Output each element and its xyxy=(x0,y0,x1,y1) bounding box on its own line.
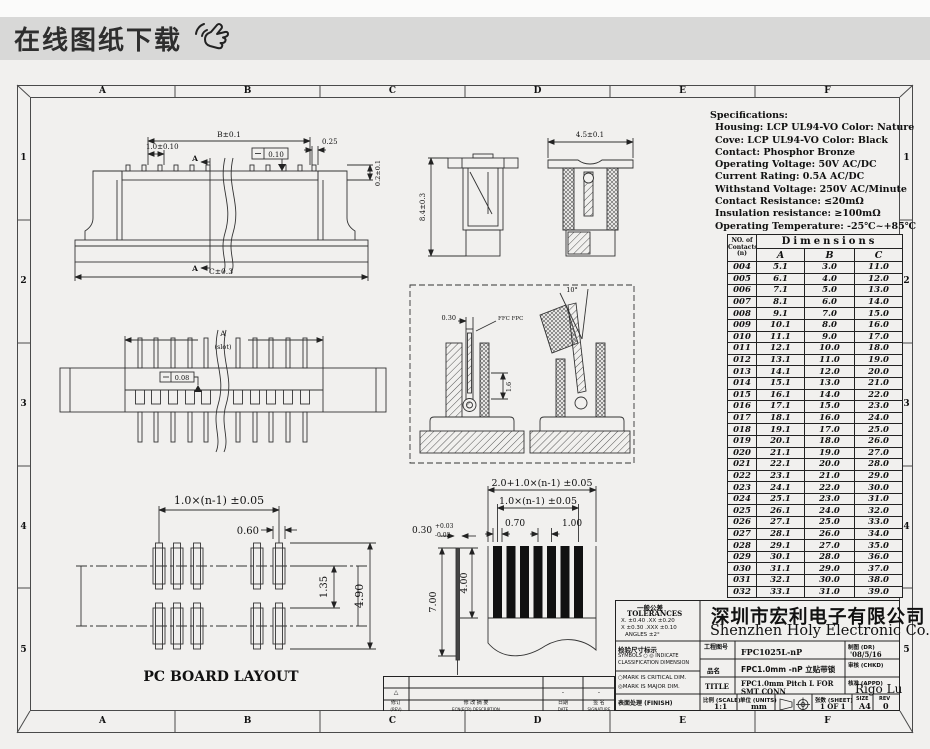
click-hand-icon xyxy=(192,21,234,57)
spec-line: Housing: LCP UL94-VO Color: Nature xyxy=(710,122,910,134)
table-cell: 28.0 xyxy=(805,551,855,563)
table-row: 01516.114.022.0 xyxy=(728,389,903,401)
pcb-layout-drawing: 1.0×(n-1) ±0.05 0.60 1.35 4.90 PC BOARD … xyxy=(58,484,393,689)
table-cell: 20.0 xyxy=(805,459,855,471)
frame-column-label: A xyxy=(30,85,175,97)
spec-line: Contact Resistance: ≤20mΩ xyxy=(710,196,910,208)
table-cell: 23.1 xyxy=(757,470,805,482)
table-cell: 13.0 xyxy=(805,377,855,389)
dim-tip-label: 0.30 xyxy=(442,314,456,322)
table-cell: 19.1 xyxy=(757,424,805,436)
table-cell: 27.1 xyxy=(757,517,805,529)
table-cell: 20.1 xyxy=(757,435,805,447)
table-row: 02829.127.035.0 xyxy=(728,540,903,552)
table-cell: 7.0 xyxy=(805,308,855,320)
table-cell: 10.0 xyxy=(805,343,855,355)
pcb-layout-title: PC BOARD LAYOUT xyxy=(143,669,299,685)
table-row: 02728.126.034.0 xyxy=(728,528,903,540)
dim-thickness-tol-dn: -0.02 xyxy=(435,532,451,539)
dim-angle-label: 10° xyxy=(566,286,578,294)
table-cell: 6.0 xyxy=(805,296,855,308)
table-cell: 14.1 xyxy=(757,366,805,378)
table-cell: 10.1 xyxy=(757,319,805,331)
dim-thickness-label: 0.30 xyxy=(412,526,432,536)
table-row: 02021.119.027.0 xyxy=(728,447,903,459)
table-cell: 004 xyxy=(728,262,757,274)
table-cell: 25.0 xyxy=(855,424,903,436)
table-row: 01314.112.020.0 xyxy=(728,366,903,378)
tolerance-line-3: ANGLES ±2° xyxy=(625,632,660,638)
spec-line: Contact: Phosphor Bronze xyxy=(710,147,910,159)
specs-lines: Housing: LCP UL94-VO Color: NatureCove: … xyxy=(710,122,910,233)
table-cell: 32.0 xyxy=(855,505,903,517)
tolerance-line-2: X ±0.30 .XXX ±0.10 xyxy=(621,625,677,631)
table-cell: 20.0 xyxy=(855,366,903,378)
table-cell: 013 xyxy=(728,366,757,378)
table-cell: 22.0 xyxy=(855,389,903,401)
table-cell: 26.1 xyxy=(757,505,805,517)
table-cell: 014 xyxy=(728,377,757,389)
table-row: 03132.130.038.0 xyxy=(728,575,903,587)
dim-end-label: 0.25 xyxy=(322,138,338,146)
table-cell: 3.0 xyxy=(805,262,855,274)
frame-column-label: E xyxy=(610,85,755,97)
table-row: 02122.120.028.0 xyxy=(728,459,903,471)
table-cell: 006 xyxy=(728,285,757,297)
dim-span-label: 1.0×(n-1) ±0.05 xyxy=(499,496,577,507)
page-top-strip xyxy=(0,0,930,17)
table-cell: 16.0 xyxy=(855,319,903,331)
table-row: 01011.19.017.0 xyxy=(728,331,903,343)
table-cell: 15.1 xyxy=(757,377,805,389)
table-cell: 19.0 xyxy=(855,354,903,366)
dim-pad-label: 0.70 xyxy=(505,519,525,529)
table-cell: 14.0 xyxy=(805,389,855,401)
table-cell: 26.0 xyxy=(855,435,903,447)
frame-column-label: D xyxy=(465,85,610,97)
dim-inner-label: 1.35 xyxy=(319,576,330,598)
frame-column-label: D xyxy=(465,711,610,733)
section-label-top: A xyxy=(191,154,198,163)
table-cell: 18.1 xyxy=(757,412,805,424)
table-cell: 007 xyxy=(728,296,757,308)
table-cell: 18.0 xyxy=(855,343,903,355)
col-label-en: ECN(ECR) DESCRIPTION xyxy=(409,707,543,713)
revision-row-date: - xyxy=(543,690,583,696)
table-cell: 17.0 xyxy=(855,331,903,343)
table-corner-header: NO. of Contacts (n) xyxy=(728,235,757,262)
inspection-line-1: SYMBOLS ○ ◎ INDICATE xyxy=(618,653,679,659)
table-col-header-c: C xyxy=(855,249,903,262)
table-cell: 17.1 xyxy=(757,401,805,413)
revision-col-rev: 修订 (REV) xyxy=(383,701,409,712)
table-cell: 12.1 xyxy=(757,343,805,355)
table-col-header-a: A xyxy=(757,249,805,262)
dim-b-label: B±0.1 xyxy=(217,130,241,139)
table-cell: 37.0 xyxy=(855,563,903,575)
table-cell: 25.0 xyxy=(805,517,855,529)
table-cell: 31.0 xyxy=(855,493,903,505)
table-cell: 32.1 xyxy=(757,575,805,587)
table-cell: 22.0 xyxy=(805,482,855,494)
table-cell: 25.1 xyxy=(757,493,805,505)
sheet-value: 1 OF 1 xyxy=(820,702,846,711)
table-cell: 11.1 xyxy=(757,331,805,343)
table-cell: 017 xyxy=(728,412,757,424)
title-block: 一般公差 TOLERANCES X. ±0.40 .XX ±0.20 X ±0.… xyxy=(615,600,900,711)
revision-row-sign: - xyxy=(583,690,615,696)
tolerance-title-en: TOLERANCES xyxy=(627,609,682,618)
table-cell: 6.1 xyxy=(757,273,805,285)
table-row: 02627.125.033.0 xyxy=(728,517,903,529)
table-cell: 12.0 xyxy=(805,366,855,378)
table-cell: 027 xyxy=(728,528,757,540)
table-cell: 31.0 xyxy=(805,586,855,598)
table-row: 0067.15.013.0 xyxy=(728,285,903,297)
side-section-views: 8.4±0.3 4.5±0.1 xyxy=(418,112,643,262)
table-row: 01920.118.026.0 xyxy=(728,435,903,447)
table-row: 03031.129.037.0 xyxy=(728,563,903,575)
dim-thickness-tol-up: +0.03 xyxy=(435,523,454,530)
table-cell: 015 xyxy=(728,389,757,401)
mark-major-note: ◎MARK IS MAJOR DIM. xyxy=(618,684,680,690)
frame-row-label: 5 xyxy=(17,588,30,711)
table-cell: 23.0 xyxy=(855,401,903,413)
revision-table: △ - - 修订 (REV) 修 改 摘 要 ECN(ECR) DESCRIPT… xyxy=(383,676,615,711)
table-cell: 008 xyxy=(728,308,757,320)
table-cell: 24.0 xyxy=(855,412,903,424)
frame-column-label: A xyxy=(30,711,175,733)
table-cell: 11.0 xyxy=(805,354,855,366)
mark-critical-note: ○MARK IS CRITICAL DIM. xyxy=(618,675,686,681)
tolerance-line-1: X. ±0.40 .XX ±0.20 xyxy=(621,618,675,624)
table-cell: 012 xyxy=(728,354,757,366)
table-cell: 30.0 xyxy=(855,482,903,494)
table-cell: 18.0 xyxy=(805,435,855,447)
frame-column-labels-top: ABCDEF xyxy=(30,85,900,97)
dim-height-label: 0.2±0.1 xyxy=(374,160,382,186)
table-cell: 16.0 xyxy=(805,412,855,424)
table-cell: 30.0 xyxy=(805,575,855,587)
table-row: 01617.115.023.0 xyxy=(728,401,903,413)
dim-height-label: 8.4±0.3 xyxy=(419,193,427,221)
banner-title: 在线图纸下载 xyxy=(14,20,182,57)
table-cell: 12.0 xyxy=(855,273,903,285)
table-cell: 23.0 xyxy=(805,493,855,505)
table-row: 01819.117.025.0 xyxy=(728,424,903,436)
table-cell: 020 xyxy=(728,447,757,459)
front-view-drawing: B±0.1 1.0±0.10 0.10 0.25 0.2±0.1 C±0.3 A… xyxy=(60,118,390,288)
dim-overall-label: 4.90 xyxy=(353,584,366,609)
spec-line: Current Rating: 0.5A AC/DC xyxy=(710,171,910,183)
table-cell: 33.1 xyxy=(757,586,805,598)
title-label: TITLE xyxy=(705,682,729,691)
table-cell: 025 xyxy=(728,505,757,517)
table-cell: 13.1 xyxy=(757,354,805,366)
frame-row-label: 2 xyxy=(17,220,30,343)
table-cell: 9.0 xyxy=(805,331,855,343)
table-row: 02930.128.036.0 xyxy=(728,551,903,563)
table-cell: 17.0 xyxy=(805,424,855,436)
table-cell: 023 xyxy=(728,482,757,494)
table-cell: 026 xyxy=(728,517,757,529)
frame-column-label: C xyxy=(320,711,465,733)
table-row: 0078.16.014.0 xyxy=(728,296,903,308)
frame-column-label: F xyxy=(755,711,900,733)
dim-width-label: 4.5±0.1 xyxy=(576,131,604,139)
table-cell: 005 xyxy=(728,273,757,285)
table-cell: 28.1 xyxy=(757,528,805,540)
dim-c-label: C±0.3 xyxy=(209,267,233,276)
table-cell: 19.0 xyxy=(805,447,855,459)
table-cell: 31.1 xyxy=(757,563,805,575)
product-value: FPC1.0mm -nP 立贴带锁 xyxy=(741,664,835,675)
table-cell: 028 xyxy=(728,540,757,552)
dim-depth-label: 1.6 xyxy=(505,382,513,392)
table-row: 02526.124.032.0 xyxy=(728,505,903,517)
specifications-block: Specifications: Housing: LCP UL94-VO Col… xyxy=(710,110,910,233)
table-cell: 13.0 xyxy=(855,285,903,297)
table-cell: 29.0 xyxy=(805,563,855,575)
inspection-line-2: CLASSIFICATION DIMENSION xyxy=(618,660,689,666)
revision-row-rev: △ xyxy=(383,690,409,696)
finish-label: 表面处理 (FINISH) xyxy=(618,698,673,707)
frame-column-label: E xyxy=(610,711,755,733)
revision-col-desc: 修 改 摘 要 ECN(ECR) DESCRIPTION xyxy=(409,701,543,712)
frame-row-label: 3 xyxy=(17,343,30,466)
table-cell: 011 xyxy=(728,343,757,355)
dim-len1-label: 7.00 xyxy=(428,591,439,612)
table-cell: 032 xyxy=(728,586,757,598)
table-row: 01415.113.021.0 xyxy=(728,377,903,389)
page: 在线图纸下载 ABCDEF ABCDEF 12345 xyxy=(0,0,930,749)
table-cell: 27.0 xyxy=(805,540,855,552)
table-cell: 34.0 xyxy=(855,528,903,540)
table-cell: 14.0 xyxy=(855,296,903,308)
table-cell: 031 xyxy=(728,575,757,587)
table-cell: 28.0 xyxy=(855,459,903,471)
table-cell: 22.1 xyxy=(757,459,805,471)
table-row: 01112.110.018.0 xyxy=(728,343,903,355)
dim-pitch-label: 1.00 xyxy=(562,519,582,529)
dim-a-note: (slot) xyxy=(214,343,231,351)
scale-value: 1:1 xyxy=(714,702,727,711)
table-cell: 26.0 xyxy=(805,528,855,540)
col-label-en: DATE xyxy=(543,707,583,713)
chkd-label: 审核 (CHKD) xyxy=(848,661,883,669)
frame-row-labels-left: 12345 xyxy=(17,97,30,711)
table-cell: 30.1 xyxy=(757,551,805,563)
section-label-bottom: A xyxy=(191,264,198,273)
title-line-2: SMT CONN xyxy=(741,687,786,696)
dim-len2-label: 4.00 xyxy=(459,572,470,593)
spec-line: Operating Temperature: -25℃~+85℃ xyxy=(710,221,910,233)
spec-line: Operating Voltage: 50V AC/DC xyxy=(710,159,910,171)
table-cell: 24.1 xyxy=(757,482,805,494)
detail-section-views: 0.30 FFC FPC 1.6 10° xyxy=(400,281,645,471)
table-cell: 5.0 xyxy=(805,285,855,297)
table-cell: 010 xyxy=(728,331,757,343)
table-cell: 019 xyxy=(728,435,757,447)
table-cell: 5.1 xyxy=(757,262,805,274)
table-cell: 15.0 xyxy=(805,401,855,413)
corner-line: (n) xyxy=(728,251,756,258)
dim-pitch-label: 1.0±0.10 xyxy=(146,143,179,151)
table-row: 0056.14.012.0 xyxy=(728,273,903,285)
product-label: 品名 xyxy=(707,665,720,675)
table-cell: 35.0 xyxy=(855,540,903,552)
spec-line: Insulation resistance: ≥100mΩ xyxy=(710,208,910,220)
drawing-no-value: FPC1025L-nP xyxy=(741,647,802,657)
company-name-en: Shenzhen Holy Electronic Co.,Ltd xyxy=(710,623,930,639)
cable-note: FFC FPC xyxy=(498,316,523,322)
table-cell: 9.1 xyxy=(757,308,805,320)
table-cell: 21.1 xyxy=(757,447,805,459)
table-row: 02223.121.029.0 xyxy=(728,470,903,482)
table-row: 02425.123.031.0 xyxy=(728,493,903,505)
table-row: 0089.17.015.0 xyxy=(728,308,903,320)
table-cell: 38.0 xyxy=(855,575,903,587)
table-cell: 24.0 xyxy=(805,505,855,517)
specs-title: Specifications: xyxy=(710,110,910,122)
table-row: 01718.116.024.0 xyxy=(728,412,903,424)
frame-row-label: 4 xyxy=(17,465,30,588)
frame-column-label: B xyxy=(175,85,320,97)
dr-value: '08/5/16 xyxy=(850,650,882,659)
table-cell: 8.0 xyxy=(805,319,855,331)
table-col-header-b: B xyxy=(805,249,855,262)
size-value: A4 xyxy=(859,701,871,711)
table-row: 02324.122.030.0 xyxy=(728,482,903,494)
table-cell: 11.0 xyxy=(855,262,903,274)
table-cell: 29.1 xyxy=(757,540,805,552)
frame-column-label: C xyxy=(320,85,465,97)
table-cell: 21.0 xyxy=(805,470,855,482)
frame-row-label: 1 xyxy=(17,97,30,220)
col-label-en: (REV) xyxy=(383,707,409,713)
table-cell: 15.0 xyxy=(855,308,903,320)
download-banner[interactable]: 在线图纸下载 xyxy=(0,17,930,60)
table-cell: 030 xyxy=(728,563,757,575)
dim-overall-label: 2.0+1.0×(n-1) ±0.05 xyxy=(491,478,592,489)
plan-view-drawing: A (slot) 0.08 xyxy=(58,300,390,460)
table-cell: 8.1 xyxy=(757,296,805,308)
table-cell: 016 xyxy=(728,401,757,413)
rev-value: 0 xyxy=(883,701,889,711)
appd-value: Rigo Lu xyxy=(855,682,902,696)
table-cell: 33.0 xyxy=(855,517,903,529)
fpc-cable-drawing: 2.0+1.0×(n-1) ±0.05 1.0×(n-1) ±0.05 0.70… xyxy=(390,478,652,683)
revision-col-sign: 签 名 SIGNATURE xyxy=(583,701,615,712)
table-cell: 21.0 xyxy=(855,377,903,389)
table-cell: 27.0 xyxy=(855,447,903,459)
table-cell: 7.1 xyxy=(757,285,805,297)
table-cell: 029 xyxy=(728,551,757,563)
frame-column-label: B xyxy=(175,711,320,733)
revision-col-date: 日期 DATE xyxy=(543,701,583,712)
frame-column-label: F xyxy=(755,85,900,97)
col-label-en: SIGNATURE xyxy=(583,707,615,713)
units-value: mm xyxy=(751,702,767,711)
table-cell: 36.0 xyxy=(855,551,903,563)
dim-span-label: 1.0×(n-1) ±0.05 xyxy=(174,494,264,507)
table-row: 01213.111.019.0 xyxy=(728,354,903,366)
table-cell: 022 xyxy=(728,470,757,482)
dimensions-table: NO. of Contacts (n) Dimensions A B C 004… xyxy=(727,234,903,598)
table-row: 03233.131.039.0 xyxy=(728,586,903,598)
table-cell: 4.0 xyxy=(805,273,855,285)
table-cell: 39.0 xyxy=(855,586,903,598)
frame-column-labels-bottom: ABCDEF xyxy=(30,711,900,733)
dim-pad-width-label: 0.60 xyxy=(237,526,259,537)
table-cell: 018 xyxy=(728,424,757,436)
table-cell: 29.0 xyxy=(855,470,903,482)
table-cell: 16.1 xyxy=(757,389,805,401)
table-cell: 021 xyxy=(728,459,757,471)
table-cell: 024 xyxy=(728,493,757,505)
table-group-header: Dimensions xyxy=(757,235,903,249)
dim-a-label: A xyxy=(219,329,226,338)
spec-line: Cove: LCP UL94-VO Color: Black xyxy=(710,135,910,147)
spec-line: Withstand Voltage: 250V AC/Minute xyxy=(710,184,910,196)
drawing-no-label: 工程图号 xyxy=(704,644,732,651)
table-cell: 009 xyxy=(728,319,757,331)
flatness-value: 0.08 xyxy=(175,374,189,382)
flatness-value: 0.10 xyxy=(268,151,284,159)
table-row: 0045.13.011.0 xyxy=(728,262,903,274)
table-row: 00910.18.016.0 xyxy=(728,319,903,331)
